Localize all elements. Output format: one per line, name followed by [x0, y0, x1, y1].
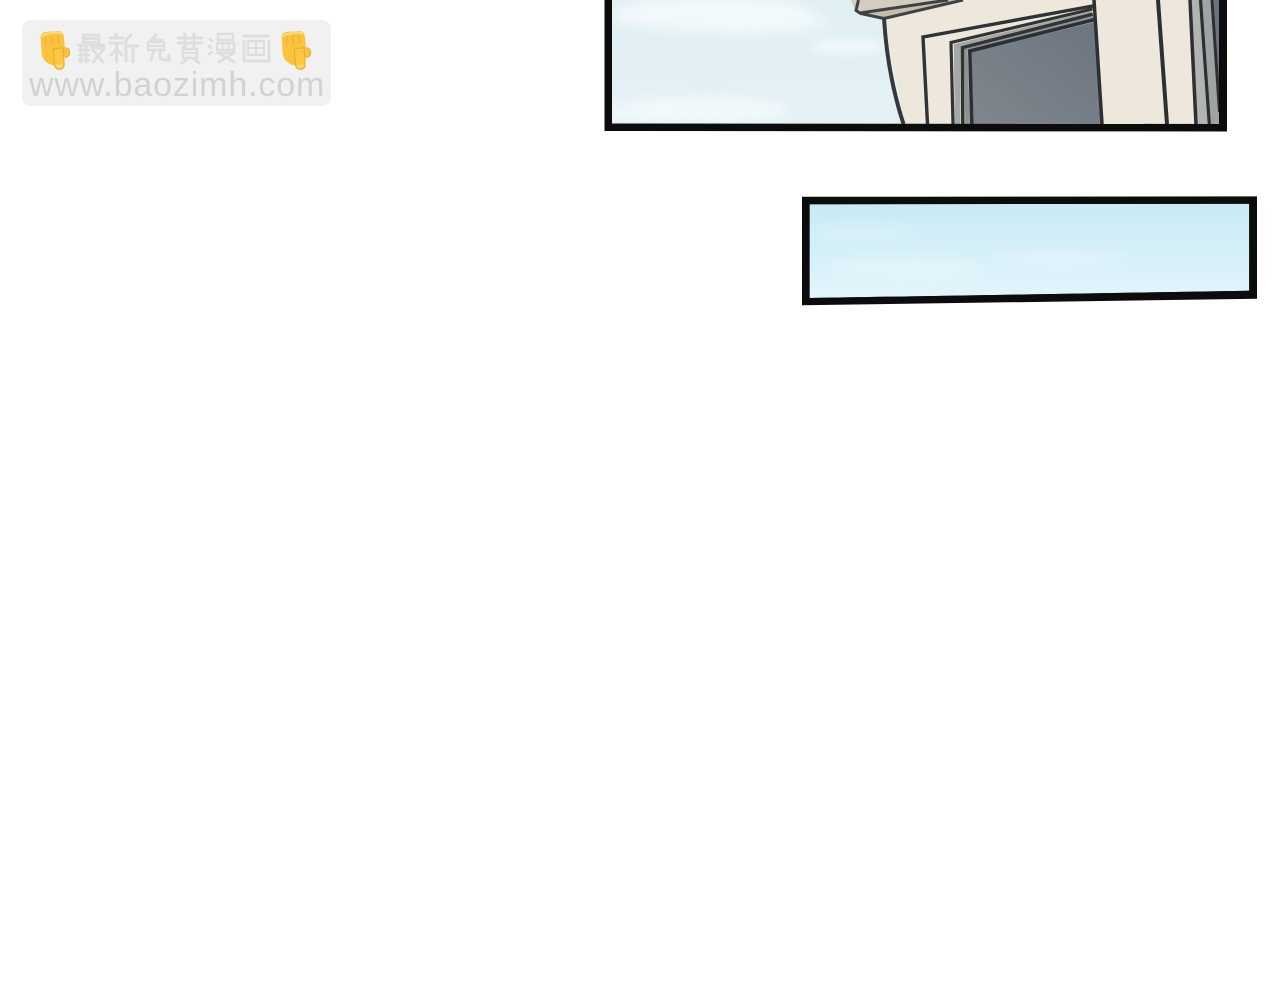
svg-text:www.baozimh.com: www.baozimh.com: [28, 66, 325, 104]
